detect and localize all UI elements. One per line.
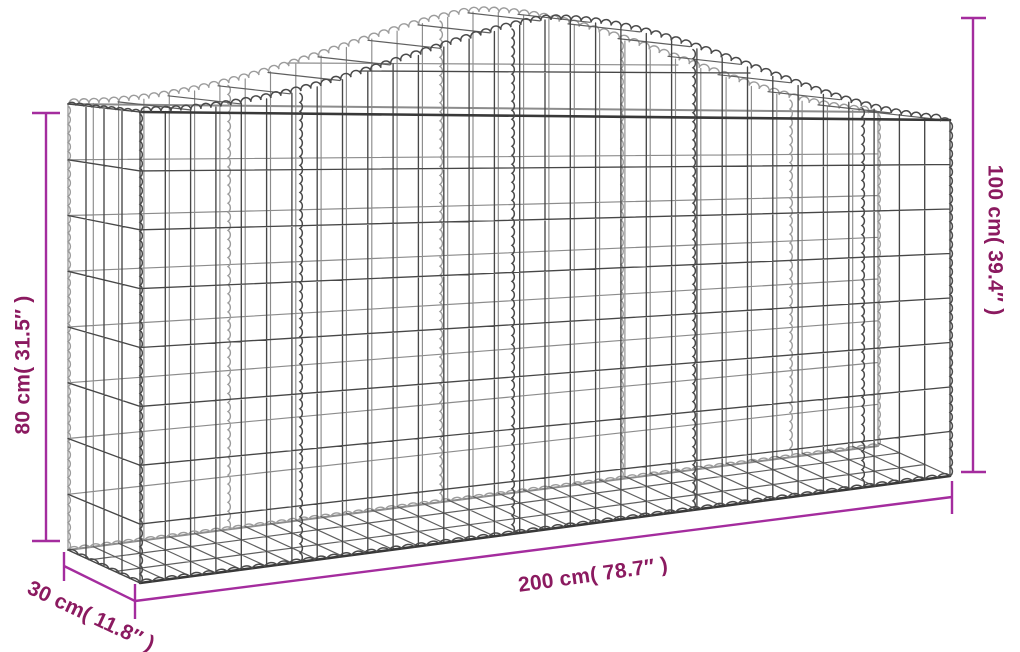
back-panel-mesh [68, 12, 878, 550]
product-image: 80 cm( 31.5″ ) 100 cm( 39.4″ ) 200 cm( 7… [0, 0, 1020, 652]
height-right-dimension [961, 18, 986, 472]
dimension-label-height-left: 80 cm( 31.5″ ) [13, 296, 34, 435]
bottom-and-lid-wires [68, 13, 950, 583]
dimension-label-height-right: 100 cm( 39.4″ ) [985, 165, 1006, 316]
length-dimension [135, 481, 952, 619]
gabion-drawing [0, 0, 1020, 652]
front-spiral-coils [68, 15, 952, 583]
gabion-basket-wireframe [68, 7, 952, 583]
height-left-dimension [32, 113, 60, 541]
back-panel-spiral-coils [68, 7, 880, 550]
